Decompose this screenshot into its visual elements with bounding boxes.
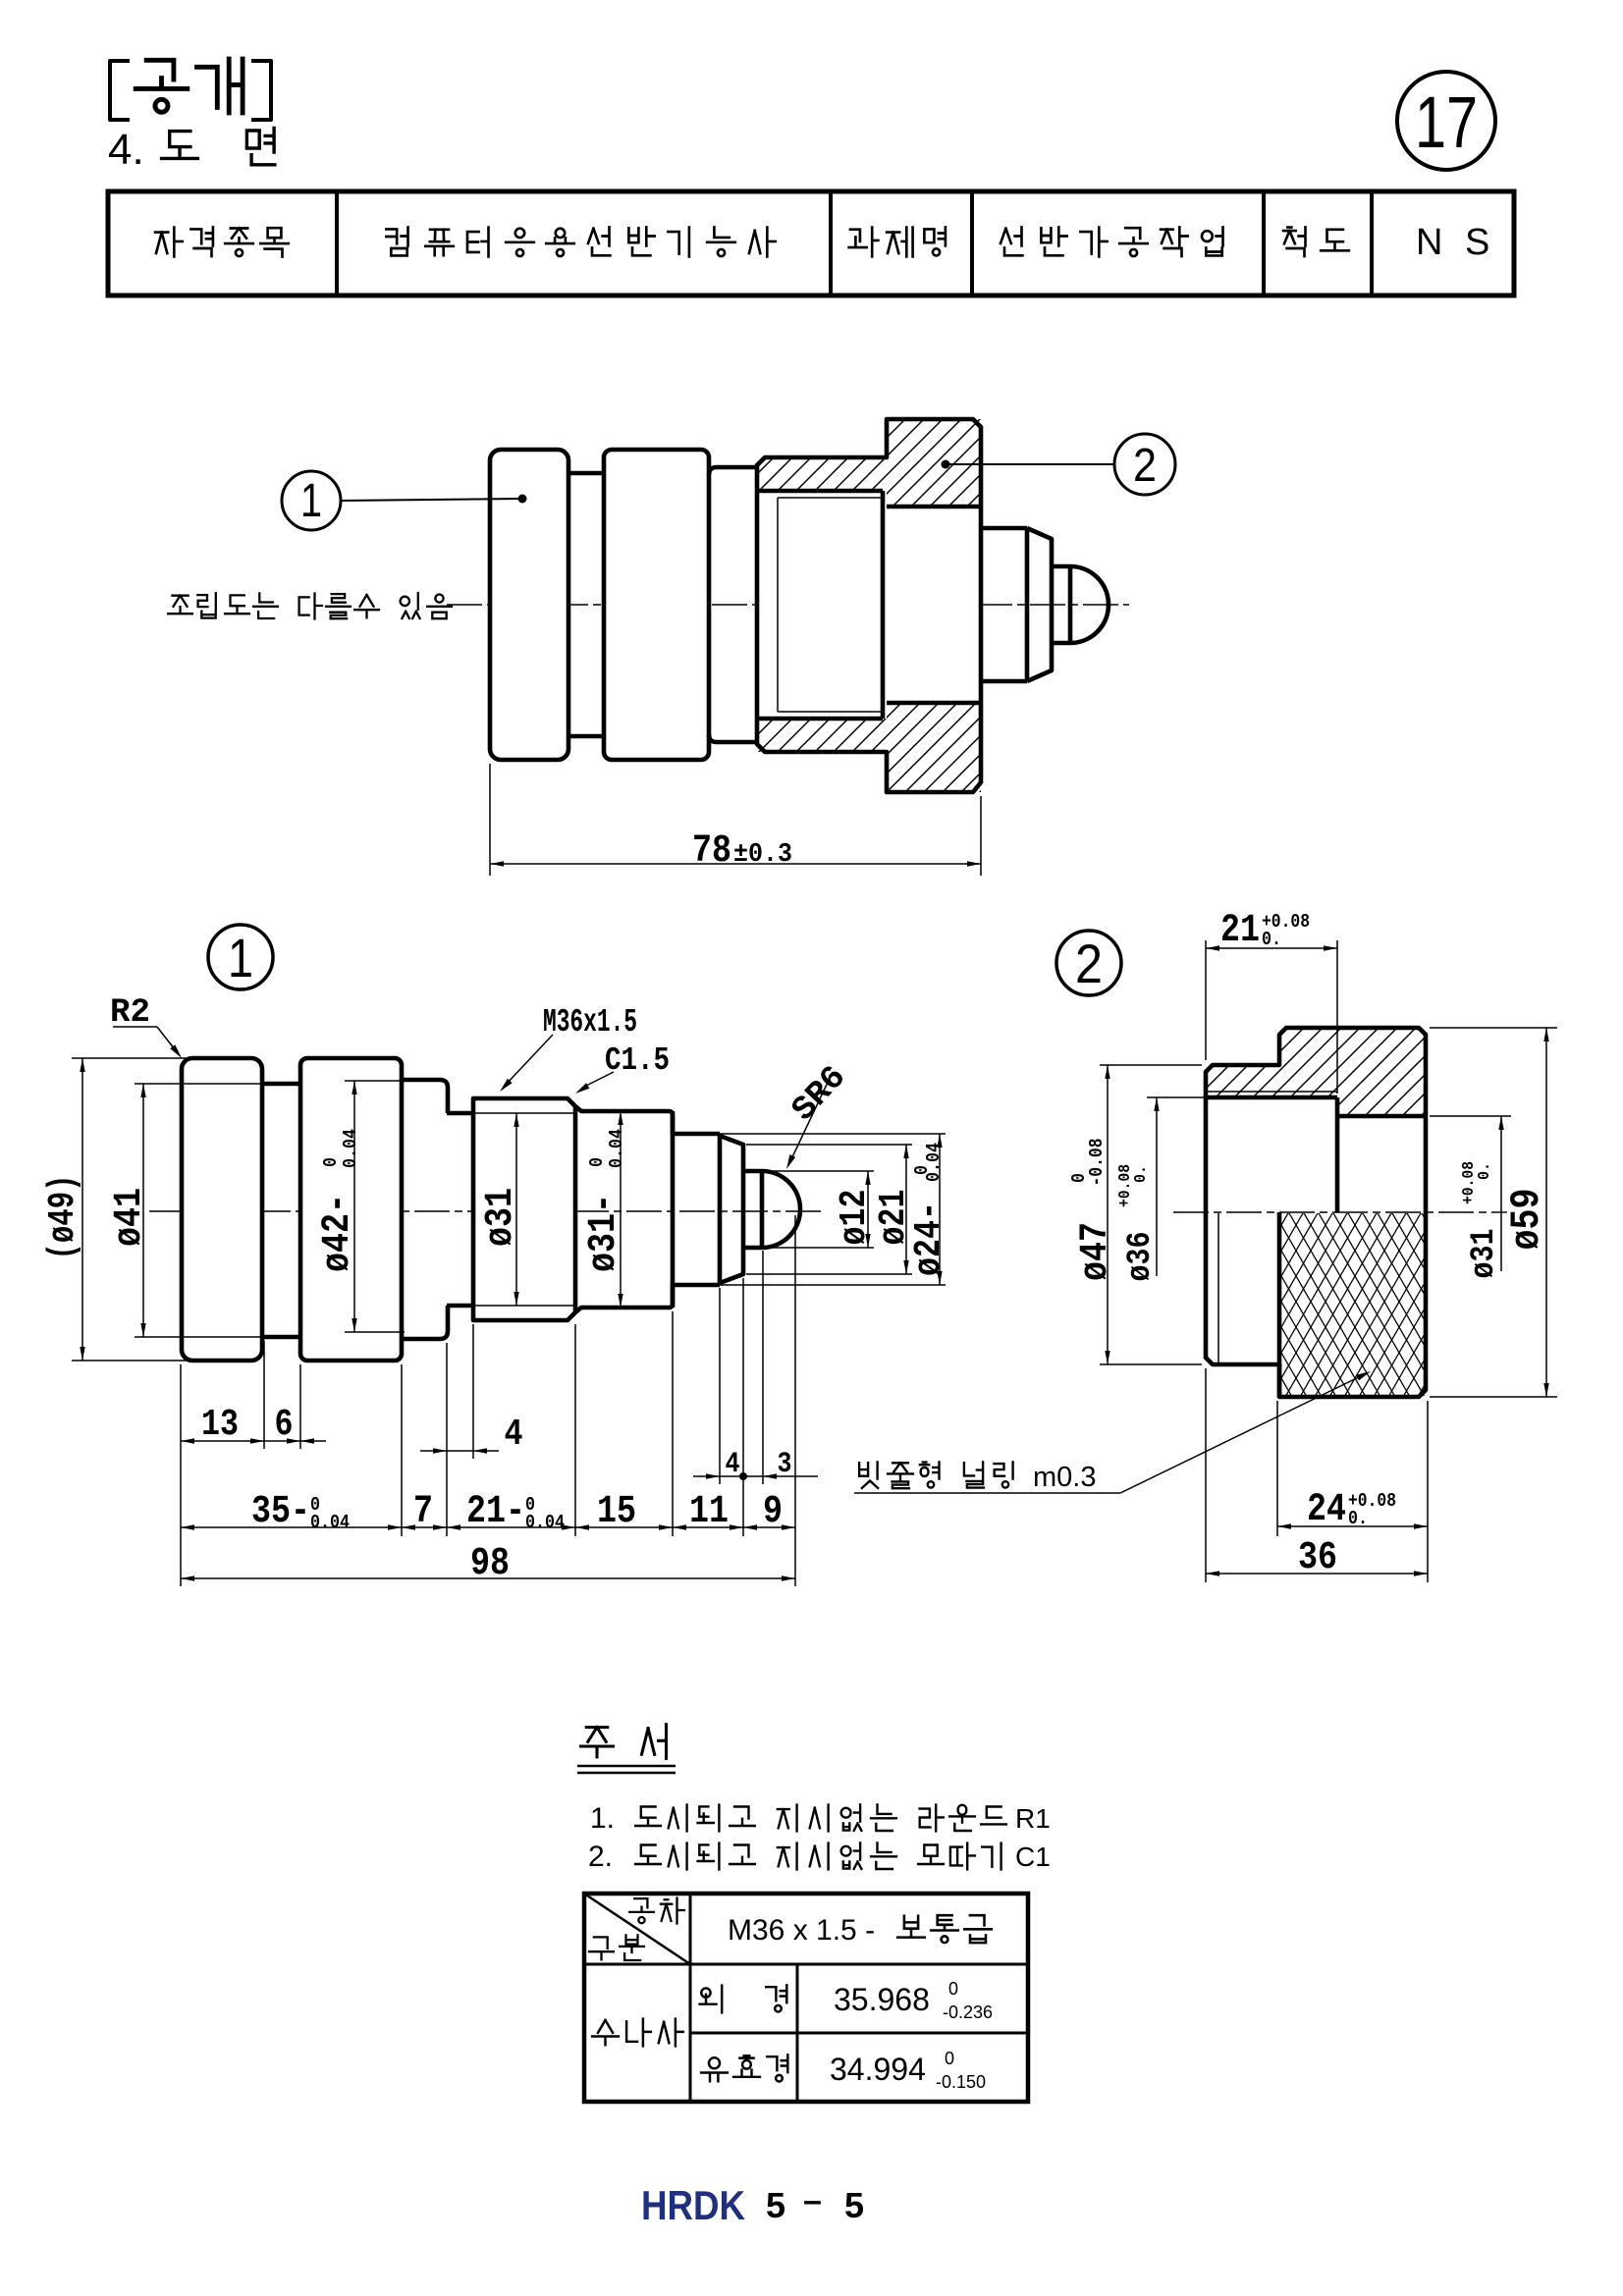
svg-text:35-: 35- [251, 1490, 310, 1534]
svg-text:–: – [803, 2182, 822, 2219]
svg-text:C1.5: C1.5 [605, 1042, 670, 1079]
svg-text:6: 6 [275, 1404, 294, 1446]
svg-text:0.04: 0.04 [310, 1512, 350, 1533]
svg-text:78: 78 [692, 829, 731, 874]
svg-text:ø36: ø36 [1122, 1232, 1160, 1282]
svg-text:m0.3: m0.3 [1033, 1462, 1096, 1493]
svg-text:5: 5 [844, 2185, 864, 2225]
svg-text:4: 4 [726, 1448, 740, 1481]
svg-text:9: 9 [763, 1490, 783, 1534]
svg-text:ø31-: ø31- [582, 1194, 626, 1272]
svg-text:0: 0 [948, 1979, 958, 1999]
svg-text:0.04: 0.04 [923, 1143, 945, 1182]
svg-text:±0.3: ±0.3 [733, 840, 792, 870]
svg-text:7: 7 [413, 1490, 433, 1534]
svg-text:17: 17 [1415, 81, 1478, 163]
svg-text:3: 3 [778, 1448, 792, 1481]
svg-text:HRDK: HRDK [641, 2182, 745, 2228]
svg-text:M36x1.5: M36x1.5 [543, 1004, 637, 1041]
svg-text:2.: 2. [588, 1841, 613, 1873]
svg-text:-0.150: -0.150 [936, 2072, 986, 2092]
svg-text:(ø49): (ø49) [42, 1175, 84, 1260]
svg-text:-0.08: -0.08 [1086, 1139, 1108, 1187]
svg-text:ø12: ø12 [834, 1190, 876, 1246]
svg-text:0.04: 0.04 [525, 1512, 565, 1533]
svg-text:0.: 0. [1476, 1162, 1494, 1180]
svg-text:0.04: 0.04 [340, 1129, 361, 1168]
svg-text:1.: 1. [590, 1802, 615, 1835]
svg-text:24: 24 [1307, 1488, 1346, 1532]
svg-text:35.968: 35.968 [834, 1982, 930, 2017]
svg-text:N S: N S [1416, 222, 1495, 263]
svg-text:2: 2 [1075, 933, 1103, 994]
svg-text:ø59: ø59 [1503, 1189, 1550, 1251]
svg-text:11: 11 [689, 1490, 729, 1534]
svg-text:0.: 0. [1262, 929, 1281, 950]
svg-text:ø47: ø47 [1074, 1222, 1118, 1281]
svg-text:ø31: ø31 [1466, 1229, 1503, 1279]
svg-text:-0.236: -0.236 [943, 2002, 993, 2022]
svg-text:ø24-: ø24- [908, 1201, 950, 1276]
svg-text:4.: 4. [108, 126, 144, 174]
svg-text:98: 98 [470, 1542, 510, 1586]
svg-text:21-: 21- [466, 1490, 525, 1534]
svg-text:0.04: 0.04 [606, 1129, 627, 1168]
svg-text:13: 13 [201, 1404, 239, 1446]
svg-text:R1: R1 [1015, 1803, 1051, 1834]
svg-text:34.994: 34.994 [830, 2052, 926, 2087]
svg-text:21: 21 [1220, 909, 1260, 953]
svg-text:1: 1 [300, 475, 322, 527]
svg-text:0: 0 [945, 2049, 954, 2068]
svg-text:0: 0 [586, 1157, 608, 1167]
svg-text:0.: 0. [1132, 1165, 1151, 1183]
svg-text:1: 1 [228, 927, 253, 988]
svg-text:ø42-: ø42- [316, 1194, 360, 1272]
svg-text:5: 5 [766, 2185, 785, 2225]
svg-text:M36 x 1.5 -: M36 x 1.5 - [728, 1914, 875, 1947]
svg-text:0: 0 [320, 1157, 342, 1167]
svg-text:15: 15 [597, 1490, 636, 1534]
svg-text:2: 2 [1133, 440, 1157, 492]
svg-text:36: 36 [1298, 1536, 1337, 1580]
svg-text:C1: C1 [1015, 1842, 1051, 1872]
svg-text:4: 4 [505, 1414, 523, 1456]
svg-text:ø41: ø41 [108, 1188, 152, 1247]
svg-text:0.: 0. [1348, 1508, 1368, 1529]
svg-text:ø31: ø31 [479, 1188, 523, 1247]
